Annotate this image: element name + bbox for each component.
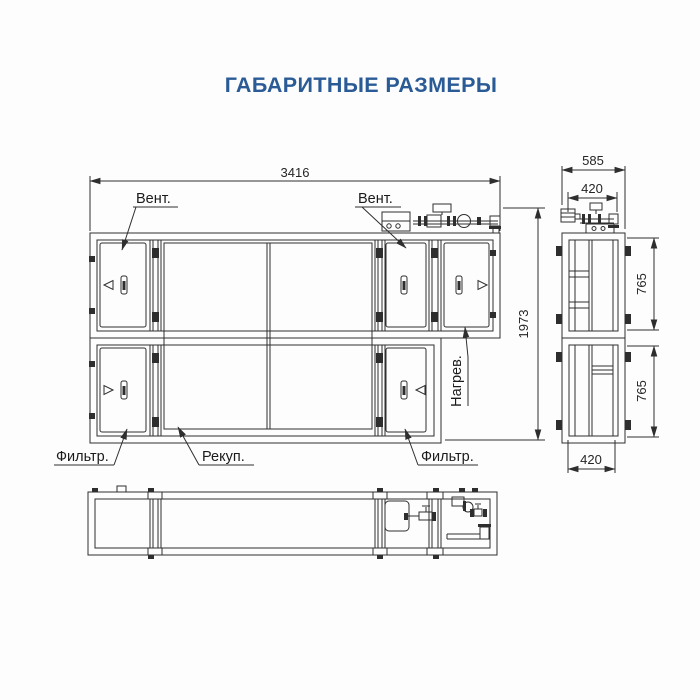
front-view (90, 204, 500, 443)
label-filter-right: Фильтр. (421, 449, 474, 465)
side-lower-module-inner (569, 345, 618, 436)
front-lower-module-inner (97, 345, 434, 436)
dim-top-width: 420 (581, 181, 603, 196)
recuperator-center-seam (267, 243, 270, 429)
label-filter-left: Фильтр. (56, 449, 109, 465)
door-heater (444, 243, 489, 327)
label-recuperator: Рекуп. (202, 449, 245, 465)
dim-bottom-width: 420 (580, 452, 602, 467)
plan-posts (150, 499, 441, 548)
door-fan-right (386, 243, 426, 327)
label-heater: Нагрев. (449, 355, 465, 407)
dim-lower-height: 765 (634, 380, 649, 402)
side-view-latches (556, 214, 631, 430)
side-upper-module-inner (569, 240, 618, 331)
front-view-labels: Вент. Вент. Фильтр. Рекуп. Фильтр. Нагре… (54, 191, 478, 465)
page-title: ГАБАРИТНЫЕ РАЗМЕРЫ (225, 73, 498, 97)
front-view-hinges-latches (89, 216, 501, 427)
front-lower-module (90, 338, 441, 443)
side-lower-module (562, 338, 625, 443)
label-fan-right: Вент. (358, 191, 393, 207)
door-filter-right (386, 348, 426, 432)
recuperator-section (164, 243, 372, 429)
side-view-dimensions: 585 420 765 765 420 (562, 153, 659, 473)
side-upper-module (562, 233, 625, 338)
dim-upper-height: 765 (634, 273, 649, 295)
side-view (561, 203, 625, 443)
dim-width: 3416 (281, 165, 310, 180)
control-box (382, 212, 410, 231)
plan-piping-assembly (407, 497, 489, 539)
front-upper-posts (150, 240, 441, 331)
plan-outline (88, 492, 497, 555)
dimensional-drawing: ГАБАРИТНЫЕ РАЗМЕРЫ (0, 0, 700, 700)
plan-outline-inner (95, 499, 490, 548)
dim-depth: 585 (582, 153, 604, 168)
label-fan-left: Вент. (136, 191, 171, 207)
dim-height: 1973 (516, 310, 531, 339)
